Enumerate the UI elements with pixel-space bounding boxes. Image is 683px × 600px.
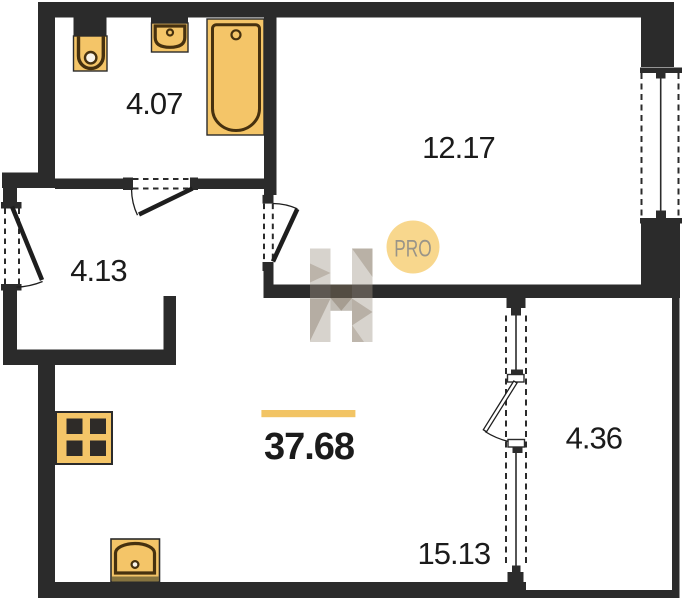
svg-text:15.13: 15.13 — [418, 536, 491, 571]
svg-text:4.07: 4.07 — [126, 86, 182, 121]
svg-text:PRO: PRO — [394, 236, 431, 262]
svg-text:4.36: 4.36 — [566, 421, 622, 456]
svg-text:4.13: 4.13 — [70, 253, 126, 288]
svg-text:12.17: 12.17 — [422, 130, 495, 165]
svg-text:37.68: 37.68 — [264, 426, 354, 468]
